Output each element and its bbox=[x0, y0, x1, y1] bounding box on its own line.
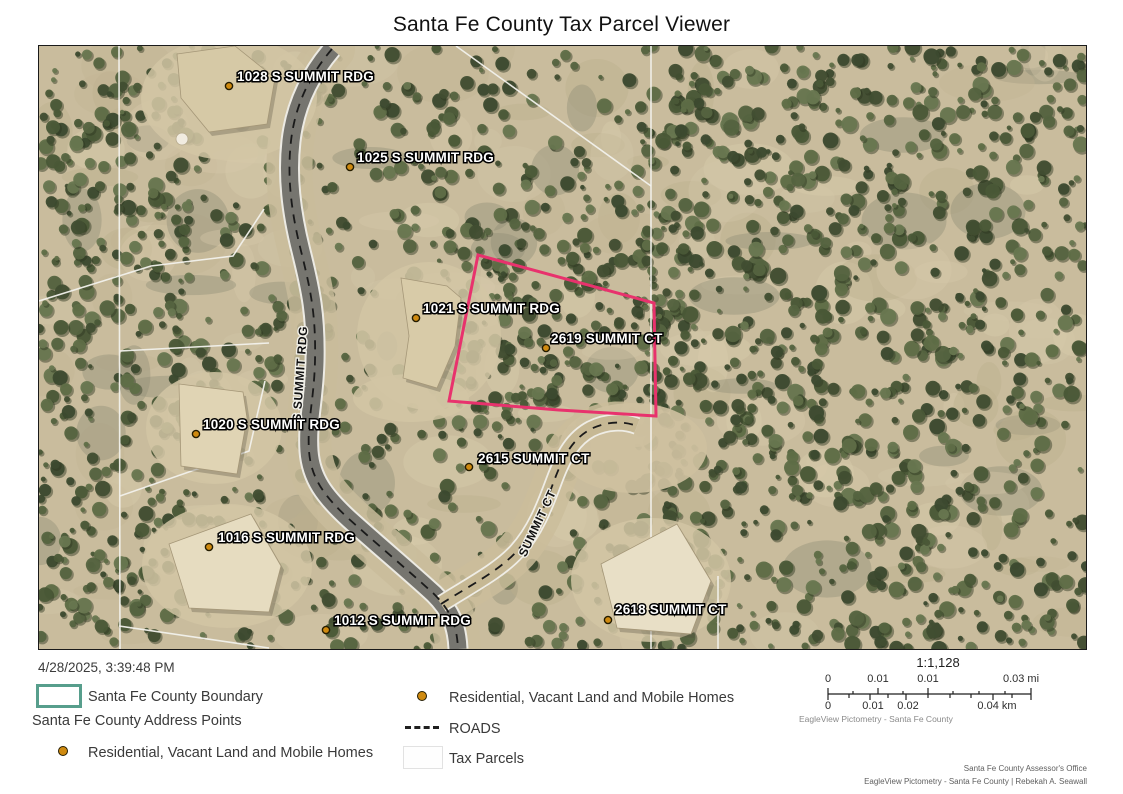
tree bbox=[722, 76, 734, 88]
tree bbox=[1018, 330, 1024, 336]
tree bbox=[982, 111, 989, 118]
tree bbox=[548, 136, 562, 150]
address-point-dot[interactable] bbox=[192, 430, 199, 437]
scalebar-credit: EagleView Pictometry - Santa Fe County bbox=[799, 714, 953, 724]
tree bbox=[554, 74, 560, 80]
tree bbox=[1034, 436, 1050, 452]
tree bbox=[220, 271, 229, 280]
tree bbox=[911, 328, 924, 341]
tree bbox=[925, 381, 940, 396]
tree bbox=[865, 438, 878, 451]
tree bbox=[1036, 558, 1045, 567]
tree bbox=[826, 486, 831, 491]
tree bbox=[788, 170, 793, 175]
tree bbox=[369, 240, 378, 249]
tree bbox=[1044, 67, 1052, 75]
tree bbox=[1078, 467, 1083, 472]
tree bbox=[727, 151, 738, 162]
tree bbox=[335, 243, 343, 251]
tree bbox=[95, 181, 105, 191]
tree bbox=[855, 419, 860, 424]
tree bbox=[788, 305, 799, 316]
tree bbox=[669, 64, 683, 78]
tree bbox=[438, 431, 446, 439]
tree bbox=[64, 396, 70, 402]
tree bbox=[802, 431, 813, 442]
tree bbox=[1030, 112, 1041, 123]
tree bbox=[41, 399, 54, 412]
tree bbox=[1044, 614, 1051, 621]
tree bbox=[678, 198, 692, 212]
building-dome bbox=[176, 133, 188, 145]
address-point-dot[interactable] bbox=[465, 463, 472, 470]
tree bbox=[1004, 480, 1016, 492]
tree bbox=[691, 324, 697, 330]
tree bbox=[558, 257, 566, 265]
tree bbox=[75, 358, 86, 369]
tree bbox=[326, 228, 332, 234]
tree bbox=[72, 239, 81, 248]
tree bbox=[525, 165, 538, 178]
tree bbox=[622, 73, 636, 87]
tree bbox=[430, 241, 437, 248]
tree bbox=[815, 70, 827, 82]
tree bbox=[912, 409, 926, 423]
tree bbox=[109, 637, 118, 646]
tree bbox=[474, 428, 482, 436]
tree bbox=[841, 246, 853, 258]
tree bbox=[820, 237, 831, 248]
tree bbox=[1043, 116, 1055, 128]
tree bbox=[681, 107, 687, 113]
tree bbox=[495, 57, 509, 71]
tree bbox=[78, 204, 86, 212]
tree bbox=[45, 90, 53, 98]
tree bbox=[623, 385, 628, 390]
tree bbox=[452, 415, 466, 429]
tree bbox=[962, 408, 968, 414]
tree bbox=[954, 246, 969, 261]
map-viewport[interactable]: S SUMMIT RDGSUMMIT CT1028 S SUMMIT RDG10… bbox=[38, 45, 1087, 650]
tree bbox=[929, 419, 945, 435]
tree bbox=[348, 574, 360, 586]
tree bbox=[714, 88, 721, 95]
tree bbox=[499, 244, 511, 256]
tree bbox=[60, 383, 72, 395]
tree bbox=[916, 562, 927, 573]
tree bbox=[789, 625, 799, 635]
tree bbox=[525, 637, 534, 646]
tree bbox=[707, 622, 719, 634]
tree bbox=[1064, 386, 1080, 402]
tree bbox=[94, 319, 100, 325]
tree bbox=[723, 431, 736, 444]
tree bbox=[1010, 259, 1015, 264]
tree bbox=[80, 381, 93, 394]
tree bbox=[1030, 391, 1042, 403]
tree bbox=[910, 481, 922, 493]
tree bbox=[274, 354, 283, 363]
tree bbox=[744, 178, 751, 185]
tree bbox=[1066, 377, 1073, 384]
tree bbox=[731, 399, 744, 412]
tree bbox=[539, 244, 549, 254]
tree bbox=[784, 460, 799, 475]
tree bbox=[775, 374, 790, 389]
address-point-dot[interactable] bbox=[322, 626, 329, 633]
tree bbox=[637, 122, 647, 132]
tree bbox=[245, 492, 253, 500]
county-boundary-label: Santa Fe County Boundary bbox=[88, 689, 263, 705]
tree bbox=[1066, 521, 1072, 527]
tree bbox=[329, 580, 335, 586]
tree bbox=[870, 482, 883, 495]
tree bbox=[682, 306, 698, 322]
tree bbox=[969, 383, 978, 392]
tree bbox=[770, 268, 786, 284]
tree bbox=[851, 384, 865, 398]
tree bbox=[689, 81, 695, 87]
tree bbox=[764, 293, 772, 301]
tree bbox=[175, 204, 181, 210]
tree bbox=[268, 294, 275, 301]
tree bbox=[720, 500, 730, 510]
tree bbox=[385, 444, 391, 450]
soil-patch bbox=[725, 232, 814, 250]
tree bbox=[879, 623, 890, 634]
tree bbox=[791, 173, 805, 187]
tree bbox=[43, 180, 55, 192]
tree bbox=[656, 242, 668, 254]
tree bbox=[836, 108, 841, 113]
tree bbox=[668, 267, 679, 278]
tree bbox=[138, 231, 146, 239]
tree bbox=[546, 388, 558, 400]
tree bbox=[737, 603, 741, 607]
tree bbox=[152, 528, 157, 533]
tree bbox=[1059, 197, 1068, 206]
tree bbox=[938, 410, 945, 417]
tree bbox=[486, 271, 491, 276]
tree bbox=[255, 329, 262, 336]
tree bbox=[838, 159, 850, 171]
tree bbox=[833, 496, 847, 510]
tree bbox=[965, 301, 970, 306]
tree bbox=[171, 215, 181, 225]
address-point-dot[interactable] bbox=[412, 314, 419, 321]
tree bbox=[41, 249, 47, 255]
tree bbox=[1007, 126, 1012, 131]
tree bbox=[711, 380, 718, 387]
tree bbox=[636, 204, 643, 211]
tree bbox=[725, 326, 741, 342]
tree bbox=[1038, 176, 1044, 182]
tree bbox=[61, 153, 70, 162]
tree bbox=[864, 166, 869, 171]
tree bbox=[701, 107, 712, 118]
tree bbox=[46, 196, 57, 207]
scale-ratio: 1:1,128 bbox=[838, 655, 1038, 670]
tree bbox=[829, 63, 834, 68]
tree bbox=[932, 71, 937, 76]
address-point-dot[interactable] bbox=[225, 82, 232, 89]
tree bbox=[689, 254, 703, 268]
tree bbox=[475, 246, 483, 254]
tree bbox=[1058, 315, 1073, 330]
tree bbox=[530, 428, 534, 432]
tree bbox=[516, 418, 521, 423]
tree bbox=[827, 383, 839, 395]
tree bbox=[51, 338, 63, 350]
tree bbox=[737, 557, 742, 562]
tree bbox=[946, 408, 958, 420]
tree bbox=[1047, 95, 1055, 103]
tree bbox=[982, 271, 998, 287]
tree bbox=[922, 320, 931, 329]
tree bbox=[951, 470, 958, 477]
tree bbox=[933, 206, 946, 219]
tree bbox=[168, 308, 176, 316]
tree bbox=[1006, 160, 1021, 175]
tree bbox=[1006, 395, 1015, 404]
tree bbox=[257, 474, 262, 479]
tree bbox=[1009, 464, 1017, 472]
tree bbox=[700, 519, 705, 524]
tree bbox=[712, 328, 723, 339]
tree bbox=[860, 328, 867, 335]
tree bbox=[138, 589, 143, 594]
tree bbox=[877, 190, 889, 202]
tree bbox=[615, 364, 620, 369]
tree bbox=[892, 417, 899, 424]
tree bbox=[745, 66, 754, 75]
tree bbox=[166, 171, 177, 182]
tree bbox=[835, 300, 850, 315]
tree bbox=[899, 547, 913, 561]
tree bbox=[609, 239, 621, 251]
tree bbox=[957, 97, 963, 103]
tree bbox=[899, 462, 908, 471]
tree bbox=[824, 448, 840, 464]
tree bbox=[367, 55, 373, 61]
tree bbox=[780, 63, 789, 72]
tree bbox=[829, 579, 835, 585]
tree bbox=[770, 453, 776, 459]
tree bbox=[148, 188, 158, 198]
tree bbox=[589, 362, 603, 376]
tree bbox=[937, 544, 945, 552]
tree bbox=[888, 63, 894, 69]
tree bbox=[1013, 508, 1028, 523]
address-point-label: 1025 S SUMMIT RDG bbox=[357, 150, 494, 165]
tree bbox=[1009, 595, 1022, 608]
tree bbox=[668, 356, 678, 366]
tree bbox=[597, 98, 612, 113]
tree bbox=[1017, 49, 1030, 62]
address-point-label: 1028 S SUMMIT RDG bbox=[237, 69, 374, 84]
tree bbox=[165, 249, 176, 260]
tree bbox=[51, 418, 57, 424]
tree bbox=[232, 487, 237, 492]
tree bbox=[934, 610, 942, 618]
tree bbox=[1064, 126, 1075, 137]
tree bbox=[169, 339, 183, 353]
tree bbox=[790, 205, 804, 219]
tree bbox=[120, 110, 125, 115]
tree bbox=[524, 338, 534, 348]
address-point-dot[interactable] bbox=[604, 616, 611, 623]
tree bbox=[635, 101, 646, 112]
tree bbox=[1009, 47, 1015, 53]
tree bbox=[892, 203, 897, 208]
tree bbox=[782, 99, 792, 109]
tree bbox=[574, 146, 585, 157]
tree bbox=[979, 219, 991, 231]
tree bbox=[493, 183, 505, 195]
soil-patch bbox=[76, 406, 125, 461]
tree bbox=[701, 134, 711, 144]
tree bbox=[501, 482, 508, 489]
tree bbox=[545, 185, 556, 196]
tree bbox=[797, 66, 810, 79]
tree bbox=[768, 486, 776, 494]
address-point-label: 1016 S SUMMIT RDG bbox=[218, 530, 355, 545]
tree bbox=[665, 189, 676, 200]
tree bbox=[397, 224, 411, 238]
tree bbox=[245, 349, 250, 354]
tree bbox=[760, 505, 769, 514]
tree bbox=[583, 195, 590, 202]
tree bbox=[86, 484, 93, 491]
tree bbox=[403, 239, 417, 253]
tree bbox=[866, 399, 873, 406]
tree bbox=[705, 417, 713, 425]
address-point-dot[interactable] bbox=[205, 543, 212, 550]
tree bbox=[1046, 344, 1059, 357]
tree bbox=[446, 229, 455, 238]
tree bbox=[919, 129, 930, 140]
tree bbox=[811, 375, 821, 385]
tree bbox=[519, 384, 523, 388]
tree bbox=[1003, 405, 1011, 413]
tree bbox=[154, 143, 161, 150]
tree bbox=[755, 338, 761, 344]
tree bbox=[560, 50, 571, 61]
tree bbox=[54, 161, 65, 172]
tree bbox=[352, 256, 364, 268]
tree bbox=[154, 229, 163, 238]
tree bbox=[46, 136, 54, 144]
tree bbox=[823, 133, 839, 149]
tree bbox=[1004, 522, 1019, 537]
tree bbox=[700, 400, 712, 412]
tree bbox=[776, 577, 791, 592]
tree bbox=[64, 426, 77, 439]
tree bbox=[849, 611, 864, 626]
tree bbox=[250, 262, 257, 269]
tree bbox=[936, 191, 947, 202]
tree bbox=[49, 365, 55, 371]
aerial-map[interactable]: S SUMMIT RDGSUMMIT CT1028 S SUMMIT RDG10… bbox=[39, 46, 1086, 649]
tree bbox=[527, 69, 537, 79]
address-point-label: 2619 SUMMIT CT bbox=[551, 331, 663, 346]
tree bbox=[257, 224, 265, 232]
tree bbox=[754, 199, 761, 206]
address-point-dot[interactable] bbox=[346, 163, 353, 170]
tree bbox=[675, 290, 684, 299]
tree bbox=[730, 414, 741, 425]
tree bbox=[744, 574, 750, 580]
tree bbox=[178, 279, 182, 283]
tree bbox=[184, 216, 193, 225]
address-point-dot[interactable] bbox=[542, 344, 549, 351]
tree bbox=[874, 566, 887, 579]
tree bbox=[139, 506, 154, 521]
tree bbox=[923, 335, 939, 351]
tree bbox=[1072, 340, 1086, 354]
tree bbox=[903, 374, 910, 381]
soil-patch bbox=[427, 495, 500, 513]
tree bbox=[1041, 288, 1054, 301]
tree bbox=[945, 532, 951, 538]
tree bbox=[804, 150, 818, 164]
tree bbox=[892, 149, 899, 156]
tree bbox=[1004, 611, 1013, 620]
tree bbox=[538, 324, 551, 337]
tree bbox=[124, 152, 136, 164]
tree bbox=[242, 325, 254, 337]
tree bbox=[52, 68, 57, 73]
tree bbox=[599, 523, 604, 528]
tree bbox=[657, 314, 662, 319]
tree bbox=[973, 165, 989, 181]
tree bbox=[385, 504, 397, 516]
tree bbox=[526, 415, 540, 429]
tree bbox=[565, 360, 570, 365]
tree bbox=[923, 48, 939, 64]
soil-patch bbox=[567, 84, 597, 131]
tree bbox=[806, 580, 821, 595]
tree bbox=[1034, 582, 1048, 596]
tree bbox=[498, 109, 509, 120]
tree bbox=[335, 398, 346, 409]
tree bbox=[529, 439, 541, 451]
tree bbox=[826, 77, 835, 86]
tree bbox=[747, 390, 756, 399]
tree bbox=[86, 558, 101, 573]
tree bbox=[640, 139, 645, 144]
tree bbox=[114, 195, 123, 204]
tree bbox=[973, 414, 986, 427]
tree bbox=[370, 168, 383, 181]
tree bbox=[809, 171, 817, 179]
parcel-line bbox=[119, 46, 120, 649]
tree bbox=[178, 236, 189, 247]
tree bbox=[887, 163, 892, 168]
tree bbox=[339, 422, 350, 433]
tree bbox=[868, 316, 874, 322]
tree bbox=[1042, 246, 1052, 256]
tree bbox=[704, 46, 709, 51]
tree bbox=[846, 542, 859, 555]
tree bbox=[89, 468, 102, 481]
tree bbox=[892, 471, 906, 485]
tree bbox=[183, 489, 189, 495]
tree bbox=[72, 304, 84, 316]
tree bbox=[781, 327, 792, 338]
tree bbox=[127, 412, 136, 421]
tree bbox=[448, 502, 457, 511]
